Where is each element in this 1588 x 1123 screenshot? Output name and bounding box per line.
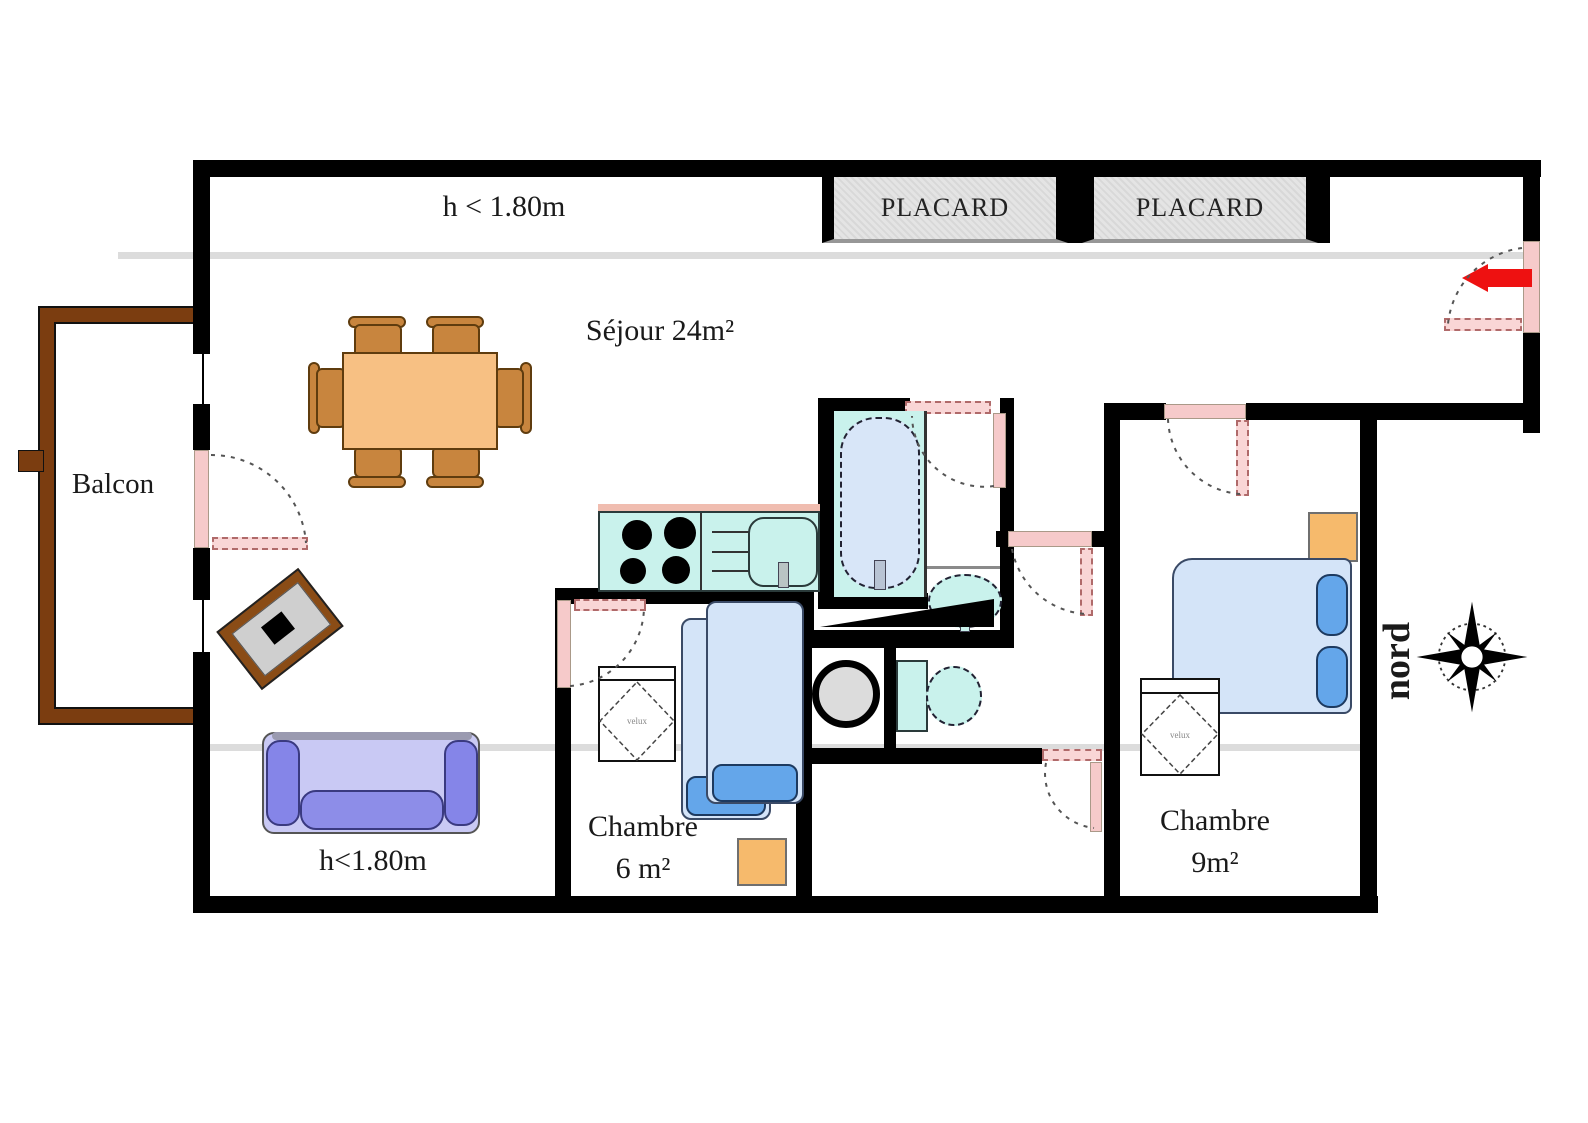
entry-arrow-icon [1462,264,1488,292]
door-open-indicator [212,537,308,550]
kitchen-counter-back [598,504,820,511]
bathtub-tap [874,560,886,590]
kitchen-sink-tap [778,562,789,588]
dining-chair [432,446,480,478]
wall-segment [193,160,210,352]
counter-divider [700,513,702,590]
hallway-door-leaf [1090,762,1102,832]
velux-label: velux [627,716,647,726]
cooktop-burner [620,558,646,584]
dining-chair [354,446,402,478]
low-ceiling-label-bottom: h<1.80m [288,844,458,878]
window [193,352,210,406]
closet-placard-left: PLACARD [822,177,1068,243]
washbasin-tap [960,614,970,632]
washbasin-shelf-line [927,566,1000,569]
floor-plan: Balcon PLACARD PLACARD [0,0,1588,1123]
cooktop-burner [664,517,696,549]
closet-placard-right: PLACARD [1082,177,1318,243]
closet-label: PLACARD [1136,193,1264,223]
cooktop-burner [622,520,652,550]
wall-segment [193,896,1378,913]
wall-segment [1068,177,1082,243]
wall-segment [884,648,896,752]
roof-window-velux: velux [1140,678,1220,776]
bedroom-small-area: 6 m² [568,848,718,890]
wall-segment [818,398,834,608]
pillow [1316,574,1348,636]
door-open-indicator [1080,548,1093,616]
pillow [712,764,798,802]
wall-segment [1104,403,1120,896]
bathroom-door-leaf [993,413,1006,488]
compass [1412,597,1532,717]
wall-segment [800,630,1014,648]
velux-label: velux [1170,730,1190,740]
toilet-bowl [926,666,982,726]
low-ceiling-line-top [118,252,1523,259]
corridor-door-leaf [1008,531,1092,547]
bedroom-large-door-leaf [1164,404,1246,419]
bedroom-large-area: 9m² [1130,842,1300,884]
wall-segment [796,748,1042,764]
window [193,598,210,654]
entry-arrow-shaft [1488,269,1532,287]
bedroom-large-name: Chambre [1130,800,1300,842]
toilet-tank [896,660,928,732]
balcony [40,308,196,723]
tv-unit [216,568,344,690]
closet-label: PLACARD [881,193,1009,223]
washing-machine [812,660,880,728]
wall-segment [193,406,210,450]
wall-segment [1318,177,1330,243]
nightstand [1308,512,1358,562]
roof-window-velux: velux [598,666,676,762]
wall-segment [1092,531,1104,547]
sofa-armrest [266,740,300,826]
wall-segment [193,654,210,913]
compass-rose-icon [1412,597,1532,717]
sofa-back [272,732,472,740]
door-open-indicator [574,599,646,611]
sofa-armrest [444,740,478,826]
wall-segment [193,160,1541,177]
wall-segment [1523,160,1540,243]
nightstand [737,838,787,886]
balcony-label: Balcon [48,468,178,501]
bedroom-small-name: Chambre [568,806,718,848]
pillow [1316,646,1348,708]
door-arc [1045,763,1094,828]
door-arc [1012,549,1086,614]
low-ceiling-label-top: h < 1.80m [404,190,604,224]
living-room-label: Séjour 24m² [555,314,765,348]
bedroom-small-door-leaf [557,600,571,688]
door-open-indicator [1236,420,1249,496]
entrance-door-leaf [1523,241,1540,333]
door-arc [211,455,306,543]
balcony-door-leaf [194,450,209,548]
dining-chair [494,368,524,428]
door-open-indicator [1042,749,1102,761]
door-open-indicator [1444,318,1522,331]
bedroom-small-label: Chambre 6 m² [568,806,718,890]
bathroom-divider [924,411,927,597]
cooktop-burner [662,556,690,584]
wall-segment [193,548,210,598]
balcony-divider [18,450,44,472]
wall-segment [1246,403,1540,420]
north-label: nord [1375,616,1421,706]
bedroom-large-label: Chambre 9m² [1130,800,1300,884]
wall-segment [996,531,1008,547]
dining-table [342,352,498,450]
sofa-seat-cushion [300,790,444,830]
door-arc [1168,419,1240,494]
